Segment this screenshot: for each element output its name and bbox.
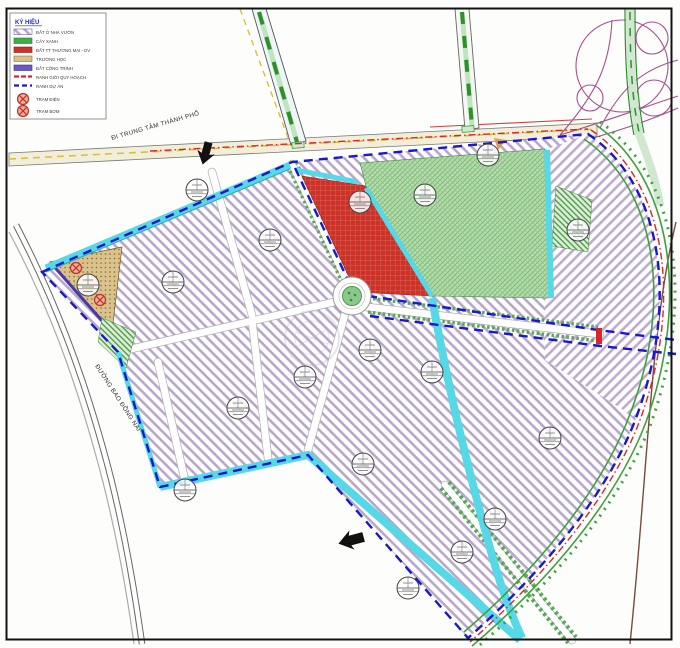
legend-swatch-residential — [14, 29, 32, 35]
parcel-label-stamp — [186, 179, 208, 201]
legend-row-commercial: ĐẤT TT THƯƠNG MẠI - DV — [14, 47, 90, 53]
parcel-label-stamp — [227, 397, 249, 419]
legend-row-residential: ĐẤT Ở NHÀ VƯỜN — [14, 29, 74, 35]
parcel-label-stamp — [567, 219, 589, 241]
parcel-label-stamp — [539, 427, 561, 449]
parcel-label-stamp — [451, 541, 473, 563]
station-symbol — [71, 263, 82, 274]
parcel-label-stamp — [174, 479, 196, 501]
junction-median — [462, 126, 474, 133]
parcel-label-stamp — [352, 453, 374, 475]
parcel-label-stamp — [294, 366, 316, 388]
legend-swatch-green — [14, 38, 32, 44]
master-plan-map: ĐI TRUNG TÂM THÀNH PHỐ ĐƯỜNG BAO ĐỒNG NA… — [0, 0, 680, 648]
junction-median — [292, 142, 304, 149]
legend-station-symbol — [18, 94, 29, 105]
legend-swatch-commercial — [14, 47, 32, 53]
legend-swatch-school — [14, 56, 32, 62]
legend-row-school: TRƯỜNG HỌC — [14, 56, 66, 62]
legend-station-symbol — [18, 106, 29, 117]
parcel-label-stamp — [477, 144, 499, 166]
legend-label: RANH DỰ ÁN — [36, 84, 63, 89]
parcel-label-stamp — [77, 274, 99, 296]
legend-label: ĐẤT TT THƯƠNG MẠI - DV — [36, 48, 90, 53]
parcel-label-stamp — [359, 339, 381, 361]
planning-map-sheet: ĐI TRUNG TÂM THÀNH PHỐ ĐƯỜNG BAO ĐỒNG NA… — [0, 0, 680, 648]
legend-row-utility: ĐẤT CÔNG TRÌNH — [14, 65, 73, 71]
legend: KÝ HIỆU ĐẤT Ở NHÀ VƯỜN CÂY XANH ĐẤT TT T… — [10, 13, 106, 119]
legend-label: CÂY XANH — [36, 39, 58, 44]
legend-label: RANH GIỚI QUY HOẠCH — [36, 75, 86, 80]
boundary-crossing-mark — [596, 328, 602, 344]
parcel-label-stamp — [421, 361, 443, 383]
parcel-label-stamp — [484, 508, 506, 530]
legend-row-green: CÂY XANH — [14, 38, 58, 44]
legend-label: TRẠM ĐIỆN — [36, 97, 60, 102]
legend-title: KÝ HIỆU — [15, 18, 39, 26]
legend-label: ĐẤT Ở NHÀ VƯỜN — [36, 30, 74, 35]
legend-swatch-utility — [14, 65, 32, 71]
station-symbol — [95, 295, 106, 306]
parcel-label-stamp — [414, 184, 436, 206]
legend-label: TRẠM BƠM — [36, 109, 60, 114]
parcel-label-stamp — [397, 577, 419, 599]
legend-label: ĐẤT CÔNG TRÌNH — [36, 66, 73, 71]
parcel-label-stamp — [349, 191, 371, 213]
parcel-label-stamp — [162, 271, 184, 293]
roundabout — [333, 277, 371, 315]
legend-label: TRƯỜNG HỌC — [36, 57, 66, 62]
parcel-label-stamp — [259, 229, 281, 251]
